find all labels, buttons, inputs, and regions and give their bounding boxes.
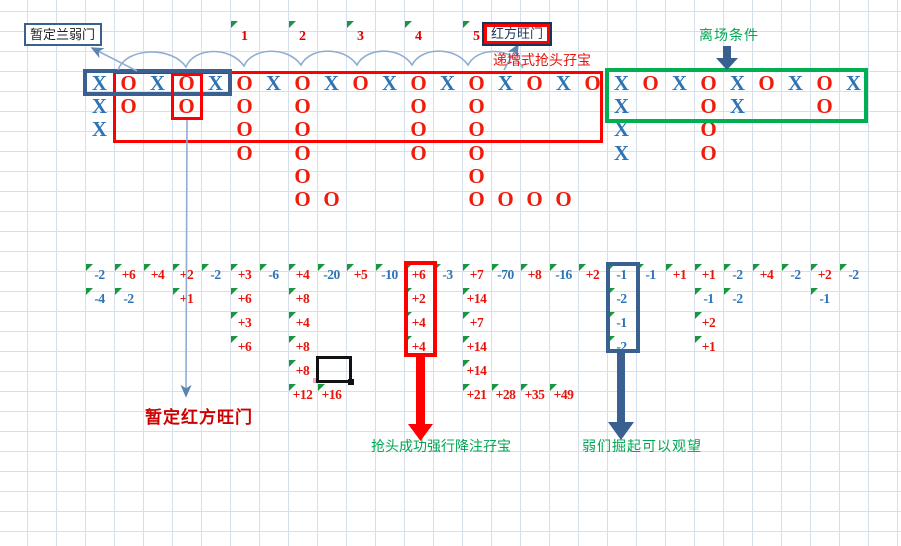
comment-triangle-icon <box>782 264 789 271</box>
leader-to-tentative-hot <box>186 120 187 396</box>
exit-condition-arrow <box>716 46 738 70</box>
comment-triangle-icon <box>724 264 731 271</box>
red-highlight-box-small <box>171 73 203 120</box>
comment-triangle-icon <box>144 264 151 271</box>
weak-rise-note: 弱们掘起可以观望 <box>582 436 702 456</box>
comment-triangle-icon <box>811 288 818 295</box>
comment-triangle-icon <box>173 264 180 271</box>
comment-triangle-icon <box>231 264 238 271</box>
hot-door-textbox-inner: 红方旺门 <box>484 24 550 44</box>
comment-triangle-icon <box>289 360 296 367</box>
comment-triangle-icon <box>289 264 296 271</box>
comment-triangle-icon <box>695 312 702 319</box>
sequence-number: 2 <box>288 28 317 46</box>
red-highlight-box-column <box>404 261 437 357</box>
xo-cell: X <box>85 118 114 141</box>
comment-triangle-icon <box>463 360 470 367</box>
comment-triangle-icon <box>463 288 470 295</box>
comment-triangle-icon <box>492 264 499 271</box>
comment-triangle-icon <box>115 288 122 295</box>
comment-triangle-icon <box>231 288 238 295</box>
weak-door-textbox[interactable]: 暂定兰弱门 <box>24 23 102 46</box>
xo-cell: O <box>288 188 317 211</box>
comment-triangle-icon <box>289 336 296 343</box>
sequence-number: 3 <box>346 28 375 46</box>
comment-triangle-icon <box>202 264 209 271</box>
xo-cell: O <box>288 142 317 165</box>
comment-triangle-icon <box>318 264 325 271</box>
xo-cell: O <box>520 188 549 211</box>
comment-triangle-icon <box>318 384 325 391</box>
comment-triangle-icon <box>492 384 499 391</box>
comment-triangle-icon <box>463 384 470 391</box>
comment-triangle-icon <box>231 336 238 343</box>
xo-cell: O <box>317 188 346 211</box>
weak-rise-arrow <box>608 352 634 440</box>
leader-to-weak-label <box>92 48 137 71</box>
xo-cell: X <box>607 142 636 165</box>
grab-success-arrow <box>408 356 433 441</box>
comment-triangle-icon <box>550 264 557 271</box>
comment-triangle-icon <box>463 336 470 343</box>
comment-triangle-icon <box>695 264 702 271</box>
comment-triangle-icon <box>463 264 470 271</box>
exit-condition-note: 离场条件 <box>699 25 759 45</box>
grab-success-note: 抢头成功强行降注孖宝 <box>371 436 511 456</box>
sequence-number: 1 <box>230 28 259 46</box>
comment-triangle-icon <box>376 264 383 271</box>
comment-triangle-icon <box>811 264 818 271</box>
comment-triangle-icon <box>521 264 528 271</box>
comment-triangle-icon <box>463 21 470 28</box>
cell-selection-box[interactable] <box>316 356 352 383</box>
green-highlight-box-exit <box>605 68 868 123</box>
xo-cell: O <box>491 188 520 211</box>
comment-triangle-icon <box>289 312 296 319</box>
comment-triangle-icon <box>260 264 267 271</box>
hot-door-textbox[interactable]: 红方旺门 <box>482 22 552 46</box>
xo-cell: O <box>549 188 578 211</box>
comment-triangle-icon <box>86 264 93 271</box>
navy-highlight-box-top-left <box>83 69 232 96</box>
comment-triangle-icon <box>347 21 354 28</box>
comment-triangle-icon <box>115 264 122 271</box>
xo-cell: X <box>85 95 114 118</box>
brace-arcs <box>118 51 523 70</box>
comment-triangle-icon <box>86 288 93 295</box>
spreadsheet-canvas[interactable]: XOXOXOXOXOXOXOXOXOXOXOXOXOXXOOOOOOXOXOXO… <box>0 0 901 546</box>
navy-highlight-box-column <box>606 262 640 353</box>
comment-triangle-icon <box>231 21 238 28</box>
xo-cell: O <box>230 142 259 165</box>
selection-fill-handle[interactable] <box>348 379 354 385</box>
comment-triangle-icon <box>695 336 702 343</box>
comment-triangle-icon <box>579 264 586 271</box>
comment-triangle-icon <box>463 312 470 319</box>
comment-triangle-icon <box>550 384 557 391</box>
xo-cell: O <box>462 188 491 211</box>
comment-triangle-icon <box>347 264 354 271</box>
xo-cell: O <box>694 142 723 165</box>
comment-triangle-icon <box>666 264 673 271</box>
comment-triangle-icon <box>840 264 847 271</box>
comment-triangle-icon <box>289 384 296 391</box>
xo-cell: O <box>288 165 317 188</box>
comment-triangle-icon <box>753 264 760 271</box>
comment-triangle-icon <box>724 288 731 295</box>
xo-cell: O <box>462 165 491 188</box>
comment-triangle-icon <box>231 312 238 319</box>
comment-triangle-icon <box>521 384 528 391</box>
xo-cell: O <box>462 142 491 165</box>
comment-triangle-icon <box>173 288 180 295</box>
comment-triangle-icon <box>695 288 702 295</box>
comment-triangle-icon <box>405 21 412 28</box>
sequence-number: 4 <box>404 28 433 46</box>
comment-triangle-icon <box>289 21 296 28</box>
comment-triangle-icon <box>289 288 296 295</box>
xo-cell: O <box>404 142 433 165</box>
tentative-hot-door-note: 暂定红方旺门 <box>145 403 253 428</box>
incremental-bet-note: 递增式抢头孖宝 <box>493 50 591 70</box>
